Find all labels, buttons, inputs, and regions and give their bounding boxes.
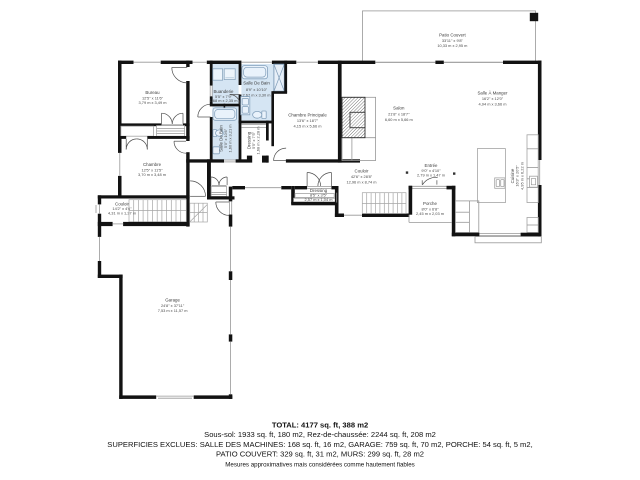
svg-text:10,33 m x 2,95 m: 10,33 m x 2,95 m <box>437 43 467 48</box>
svg-text:Mesures approximatives mais co: Mesures approximatives mais considérées … <box>225 461 415 468</box>
svg-text:2,79 m x 1,47 m: 2,79 m x 1,47 m <box>417 172 445 177</box>
svg-text:2,57 m x 1,04 m: 2,57 m x 1,04 m <box>305 197 333 202</box>
svg-text:Garage: Garage <box>165 298 180 303</box>
svg-text:3,70 m x 3,48 m: 3,70 m x 3,48 m <box>138 172 166 177</box>
svg-text:Couloir: Couloir <box>355 168 369 173</box>
svg-text:6,60 m x 5,66 m: 6,60 m x 5,66 m <box>385 117 413 122</box>
svg-text:Salle De Bain: Salle De Bain <box>243 81 270 86</box>
svg-text:1,68 m x 2,28 m: 1,68 m x 2,28 m <box>256 127 261 155</box>
svg-text:4,95 m x 6,22 m: 4,95 m x 6,22 m <box>519 162 524 190</box>
svg-text:SUPERFICIES EXCLUES: SALLE DES: SUPERFICIES EXCLUES: SALLE DES MACHINES:… <box>107 440 532 449</box>
svg-text:Chambre Principale: Chambre Principale <box>288 113 327 118</box>
svg-text:Salle À Manger: Salle À Manger <box>477 90 508 95</box>
svg-text:Chambre: Chambre <box>143 162 162 167</box>
svg-text:8'9" x 10'10": 8'9" x 10'10" <box>246 87 268 92</box>
svg-text:21'8" x 18'7": 21'8" x 18'7" <box>388 111 410 116</box>
svg-text:1,60 m x 3,21 m: 1,60 m x 3,21 m <box>228 125 233 153</box>
svg-text:42'6" x 28'8": 42'6" x 28'8" <box>351 174 373 179</box>
svg-text:Patio Couvert: Patio Couvert <box>439 33 466 38</box>
svg-text:13'6" x 18'7": 13'6" x 18'7" <box>297 118 319 123</box>
svg-text:TOTAL: 4177 sq. ft, 388 m2: TOTAL: 4177 sq. ft, 388 m2 <box>272 420 368 429</box>
svg-text:16'2" x 12'0": 16'2" x 12'0" <box>482 96 504 101</box>
svg-text:3,79 m x 3,49 m: 3,79 m x 3,49 m <box>139 100 167 105</box>
svg-text:Sous-sol: 1933 sq. ft, 180 m2,: Sous-sol: 1933 sq. ft, 180 m2, Rez-de-ch… <box>204 430 436 439</box>
svg-text:PATIO COUVERT: 329 sq. ft, 31: PATIO COUVERT: 329 sq. ft, 31 m2, MURS: … <box>216 450 424 459</box>
svg-text:Salon: Salon <box>393 106 405 111</box>
svg-text:4,31 m x 1,37 m: 4,31 m x 1,37 m <box>108 210 136 215</box>
svg-text:4,94 m x 3,66 m: 4,94 m x 3,66 m <box>479 102 507 107</box>
svg-text:12,96 m x 8,74 m: 12,96 m x 8,74 m <box>346 179 376 184</box>
svg-text:7,53 m x 11,57 m: 7,53 m x 11,57 m <box>158 308 188 313</box>
svg-text:4,15 m x 5,66 m: 4,15 m x 5,66 m <box>294 124 322 129</box>
svg-text:Bureau: Bureau <box>145 90 160 95</box>
svg-text:2,45 m x 2,03 m: 2,45 m x 2,03 m <box>416 211 444 216</box>
svg-text:1,68 m x 2,35 m: 1,68 m x 2,35 m <box>210 98 238 103</box>
